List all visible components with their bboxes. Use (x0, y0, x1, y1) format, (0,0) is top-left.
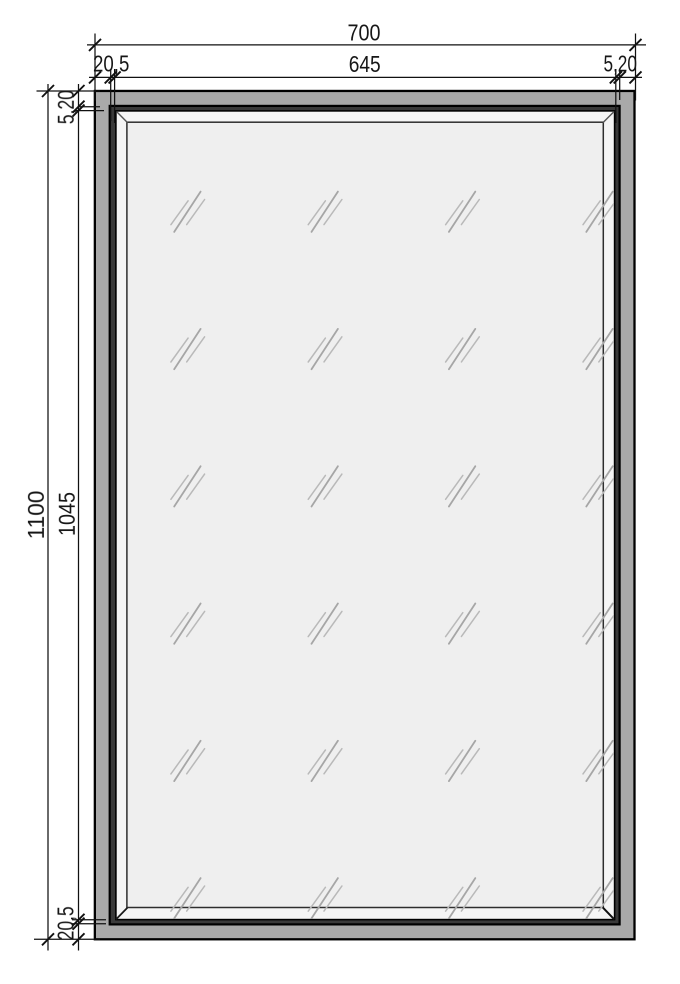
svg-text:1045: 1045 (54, 492, 80, 536)
svg-text:20,5: 20,5 (93, 51, 129, 77)
svg-text:1100: 1100 (23, 491, 49, 540)
svg-text:700: 700 (347, 19, 380, 45)
svg-text:5,20: 5,20 (53, 90, 79, 124)
svg-text:20,5: 20,5 (53, 906, 79, 940)
svg-text:645: 645 (349, 51, 381, 77)
svg-text:5,20: 5,20 (603, 51, 637, 77)
